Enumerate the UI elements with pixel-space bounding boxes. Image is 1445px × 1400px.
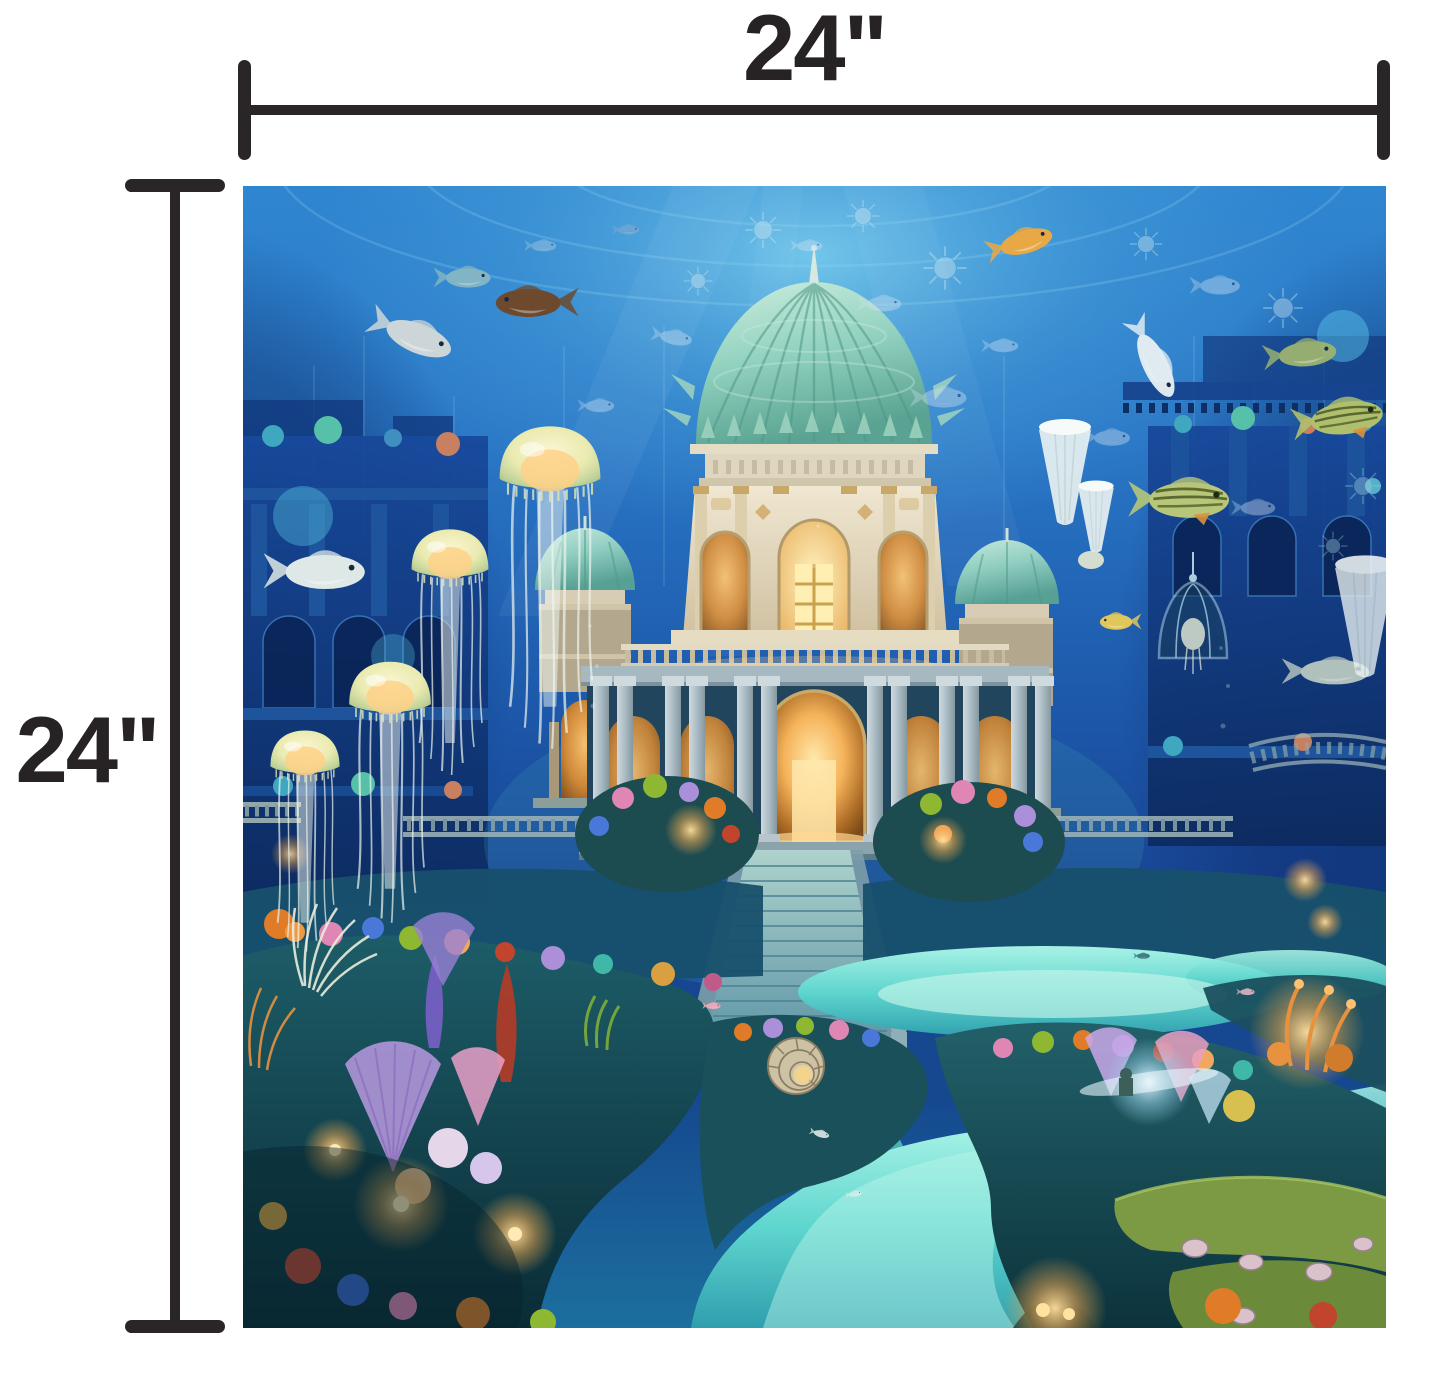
left-dimension-top-cap [125,179,225,192]
top-dimension-left-cap [238,60,251,160]
product-dimensions-diagram: 24" 24" [0,0,1445,1400]
left-dimension-bottom-cap [125,1320,225,1333]
amber-coral-cluster [1249,974,1365,1090]
left-dimension-line [170,186,180,1328]
left-dimension-label: 24" [12,700,162,800]
nautilus-shell [768,1038,824,1094]
top-dimension-right-cap [1377,60,1390,160]
artwork-image [243,186,1386,1328]
artwork [243,186,1386,1328]
top-dimension-line [244,105,1385,115]
top-dimension-label: 24" [244,0,1385,98]
